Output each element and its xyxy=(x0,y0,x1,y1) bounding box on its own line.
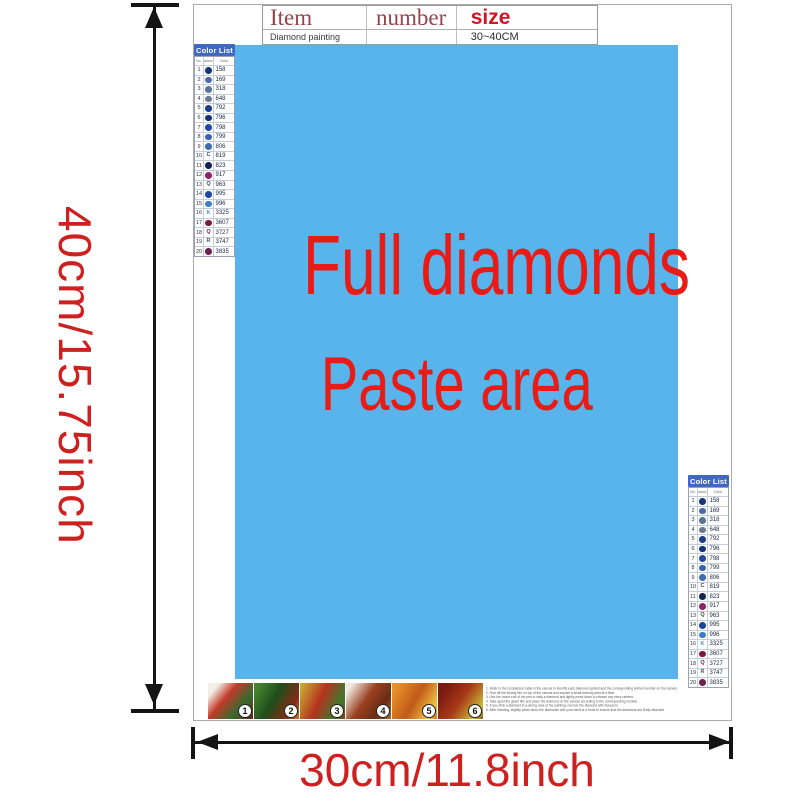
color-number: 18 xyxy=(689,659,698,668)
color-symbol-cell xyxy=(204,123,214,132)
step-number-badge: 6 xyxy=(468,704,482,718)
color-symbol-cell xyxy=(204,171,214,180)
color-number: 15 xyxy=(195,200,204,209)
color-number: 4 xyxy=(689,526,698,535)
color-list-row: 10 C 819 xyxy=(195,151,234,161)
dmc-code: 792 xyxy=(708,536,728,542)
color-list-row: 4 648 xyxy=(689,525,728,535)
item-header-label: Item xyxy=(270,6,312,29)
color-list-column-headers: No. Diamond Color xyxy=(689,488,728,496)
color-list-row: 15 996 xyxy=(195,199,234,209)
color-number: 12 xyxy=(689,602,698,611)
color-number: 16 xyxy=(689,640,698,649)
color-list-row: 15 996 xyxy=(689,630,728,640)
step-thumbnail-image: 3 xyxy=(300,683,345,719)
instructions-lines: 1. Refer to the comparison table in the … xyxy=(486,687,702,713)
step-thumbnail-image: 5 xyxy=(392,683,437,719)
color-number: 19 xyxy=(689,669,698,678)
color-number: 1 xyxy=(195,66,204,75)
step-thumbnail-image: 4 xyxy=(346,683,391,719)
dmc-code: 823 xyxy=(214,163,234,169)
diamond-symbol-icon xyxy=(699,498,706,505)
color-number: 14 xyxy=(195,190,204,199)
color-symbol-cell xyxy=(204,190,214,199)
dmc-code: 318 xyxy=(708,517,728,523)
color-list-row: 11 823 xyxy=(689,591,728,601)
diamond-symbol-icon xyxy=(699,508,706,515)
dmc-code: 819 xyxy=(214,153,234,159)
dmc-code: 823 xyxy=(708,594,728,600)
arrow-up-icon xyxy=(145,7,163,28)
col-diamond-label: Diamond xyxy=(204,57,214,65)
color-symbol-cell: Q xyxy=(204,228,214,237)
color-list-right: Color List No. Diamond Color 1 158 xyxy=(688,475,729,688)
color-number: 5 xyxy=(689,535,698,544)
dmc-code: 3607 xyxy=(708,651,728,657)
color-list-row: 9 806 xyxy=(689,572,728,582)
color-symbol-cell: R xyxy=(698,669,708,678)
color-list-row: 14 995 xyxy=(689,620,728,630)
diamond-symbol-icon xyxy=(205,124,212,131)
item-table-header-row: Item number size xyxy=(263,6,597,30)
item-info-table: Item number size Diamond painting 30~40C… xyxy=(262,5,598,45)
step-number-badge: 5 xyxy=(422,704,436,718)
diamond-symbol-icon xyxy=(205,162,212,169)
diamond-symbol-icon xyxy=(205,172,212,179)
color-symbol-cell xyxy=(204,76,214,85)
dmc-code: 792 xyxy=(214,105,234,111)
color-number: 13 xyxy=(689,612,698,621)
dmc-code: 169 xyxy=(708,508,728,514)
product-size-diagram: Item number size Diamond painting 30~40C… xyxy=(0,0,800,800)
dmc-code: 995 xyxy=(214,191,234,197)
dmc-code: 3835 xyxy=(214,249,234,255)
color-symbol-cell xyxy=(698,678,708,687)
color-symbol-cell xyxy=(204,95,214,104)
diamond-symbol-icon xyxy=(205,201,212,208)
diamond-symbol-icon xyxy=(699,679,706,686)
color-symbol-cell xyxy=(698,592,708,601)
dmc-code: 648 xyxy=(214,96,234,102)
size-value: 30~40CM xyxy=(471,32,519,43)
height-arrow-bottom-cap xyxy=(131,709,179,713)
dmc-code: 799 xyxy=(214,134,234,140)
size-header-label: size xyxy=(471,7,511,28)
item-value: Diamond painting xyxy=(270,33,340,42)
number-header-label: number xyxy=(376,6,446,29)
color-number: 2 xyxy=(689,507,698,516)
color-symbol-cell xyxy=(698,497,708,506)
arrow-down-icon xyxy=(145,684,163,705)
color-list-row: 19 R 3747 xyxy=(689,668,728,678)
dmc-code: 158 xyxy=(214,67,234,73)
color-number: 13 xyxy=(195,181,204,190)
width-dimension-label: 30cm/11.8inch xyxy=(247,747,647,793)
dmc-code: 996 xyxy=(214,201,234,207)
color-number: 10 xyxy=(195,152,204,161)
step-number-badge: 3 xyxy=(330,704,344,718)
height-dimension-label: 40cm/15.75inch xyxy=(52,206,98,545)
diamond-symbol-icon xyxy=(699,651,706,658)
color-number: 7 xyxy=(689,554,698,563)
color-list-row: 13 Q 963 xyxy=(689,611,728,621)
color-number: 4 xyxy=(195,95,204,104)
col-diamond-label: Diamond xyxy=(698,488,708,496)
color-symbol-cell: Q xyxy=(204,181,214,190)
color-symbol-cell xyxy=(698,573,708,582)
color-symbol-cell xyxy=(204,133,214,142)
color-symbol-cell xyxy=(204,66,214,75)
color-list-row: 9 806 xyxy=(195,141,234,151)
dmc-code: 819 xyxy=(708,584,728,590)
color-list-row: 17 3607 xyxy=(195,218,234,228)
color-number: 11 xyxy=(689,592,698,601)
instruction-line: 6. After finishing, slightly press down … xyxy=(486,708,702,712)
color-list-row: 19 R 3747 xyxy=(195,237,234,247)
color-list-row: 7 798 xyxy=(195,122,234,132)
color-symbol-cell xyxy=(204,114,214,123)
step-thumbnail-strip: 1 2 3 4 5 6 xyxy=(208,683,483,719)
diamond-symbol-icon xyxy=(205,77,212,84)
color-symbol-cell xyxy=(698,526,708,535)
color-list-row: 2 169 xyxy=(195,75,234,85)
step-number-badge: 2 xyxy=(284,704,298,718)
color-number: 14 xyxy=(689,621,698,630)
item-table-value-row: Diamond painting 30~40CM xyxy=(263,30,597,44)
color-list-rows: 1 158 2 169 xyxy=(689,496,728,687)
item-value-cell: Diamond painting xyxy=(263,30,367,44)
dmc-code: 796 xyxy=(214,115,234,121)
color-list-row: 5 792 xyxy=(689,534,728,544)
color-symbol-cell: R xyxy=(204,238,214,247)
color-symbol-cell: K xyxy=(204,209,214,218)
dmc-code: 917 xyxy=(214,172,234,178)
color-list-row: 4 648 xyxy=(195,94,234,104)
color-number: 3 xyxy=(195,85,204,94)
color-number: 1 xyxy=(689,497,698,506)
color-list-row: 16 K 3325 xyxy=(195,208,234,218)
diamond-symbol-icon xyxy=(699,546,706,553)
color-symbol-cell xyxy=(698,545,708,554)
color-number: 9 xyxy=(195,142,204,151)
color-number: 17 xyxy=(195,219,204,228)
diamond-symbol-icon: K xyxy=(205,210,212,217)
diamond-symbol-icon xyxy=(205,115,212,122)
color-symbol-cell: C xyxy=(204,152,214,161)
diamond-symbol-icon xyxy=(205,134,212,141)
diamond-symbol-icon xyxy=(699,555,706,562)
diamond-symbol-icon: Q xyxy=(205,229,212,236)
color-number: 16 xyxy=(195,209,204,218)
color-number: 11 xyxy=(195,161,204,170)
color-list-row: 12 917 xyxy=(195,170,234,180)
color-number: 20 xyxy=(689,678,698,687)
diamond-symbol-icon xyxy=(699,536,706,543)
color-symbol-cell xyxy=(204,200,214,209)
color-list-row: 11 823 xyxy=(195,160,234,170)
color-symbol-cell: C xyxy=(698,583,708,592)
color-list-row: 3 318 xyxy=(689,515,728,525)
color-list-row: 7 798 xyxy=(689,553,728,563)
dmc-code: 3747 xyxy=(708,670,728,676)
diamond-symbol-icon xyxy=(699,527,706,534)
diamond-symbol-icon xyxy=(699,603,706,610)
color-list-column-headers: No. Diamond Color xyxy=(195,57,234,65)
paste-area-title-line2: Paste area xyxy=(235,347,678,423)
arrow-left-icon xyxy=(197,734,218,750)
color-symbol-cell xyxy=(698,554,708,563)
dmc-code: 796 xyxy=(708,546,728,552)
diamond-symbol-icon xyxy=(699,574,706,581)
col-no-label: No. xyxy=(195,57,204,65)
color-symbol-cell: K xyxy=(698,640,708,649)
dmc-code: 3835 xyxy=(708,680,728,686)
height-arrow-line xyxy=(153,5,156,710)
dmc-code: 995 xyxy=(708,622,728,628)
color-list-row: 14 995 xyxy=(195,189,234,199)
diamond-symbol-icon: C xyxy=(205,153,212,160)
dmc-code: 963 xyxy=(708,613,728,619)
number-value-cell xyxy=(367,30,457,44)
color-list-table: No. Diamond Color 1 158 2 xyxy=(688,487,729,688)
color-list-row: 1 158 xyxy=(689,496,728,506)
diamond-symbol-icon: Q xyxy=(699,613,706,620)
color-number: 6 xyxy=(689,545,698,554)
color-number: 5 xyxy=(195,104,204,113)
color-list-row: 8 799 xyxy=(689,563,728,573)
color-list-row: 20 3835 xyxy=(689,677,728,687)
number-header-cell: number xyxy=(367,6,457,29)
color-list-row: 16 K 3325 xyxy=(689,639,728,649)
dmc-code: 648 xyxy=(708,527,728,533)
color-number: 17 xyxy=(689,650,698,659)
diamond-symbol-icon xyxy=(205,105,212,112)
color-number: 18 xyxy=(195,228,204,237)
diamond-symbol-icon: R xyxy=(205,239,212,246)
paste-area: Full diamonds Paste area xyxy=(235,45,678,679)
dmc-code: 3607 xyxy=(214,220,234,226)
color-list-title: Color List xyxy=(194,44,235,56)
color-number: 3 xyxy=(689,516,698,525)
color-list-rows: 1 158 2 169 xyxy=(195,65,234,256)
color-symbol-cell xyxy=(204,104,214,113)
color-list-table: No. Diamond Color 1 158 2 xyxy=(194,56,235,257)
size-value-cell: 30~40CM xyxy=(457,30,597,44)
diamond-symbol-icon xyxy=(699,622,706,629)
dmc-code: 3747 xyxy=(214,239,234,245)
diamond-symbol-icon xyxy=(699,565,706,572)
diamond-symbol-icon: R xyxy=(699,670,706,677)
color-list-row: 6 796 xyxy=(195,113,234,123)
diamond-symbol-icon: K xyxy=(699,641,706,648)
dmc-code: 799 xyxy=(708,565,728,571)
dmc-code: 798 xyxy=(214,125,234,131)
color-symbol-cell xyxy=(698,516,708,525)
arrow-right-icon xyxy=(709,734,730,750)
diamond-symbol-icon xyxy=(205,67,212,74)
item-header-cell: Item xyxy=(263,6,367,29)
dmc-code: 3727 xyxy=(214,230,234,236)
diamond-symbol-icon xyxy=(205,143,212,150)
dmc-code: 3325 xyxy=(214,210,234,216)
dmc-code: 996 xyxy=(708,632,728,638)
color-symbol-cell: Q xyxy=(698,612,708,621)
col-color-label: Color xyxy=(214,59,234,63)
color-list-row: 18 Q 3727 xyxy=(689,658,728,668)
color-symbol-cell xyxy=(698,535,708,544)
color-symbol-cell xyxy=(698,621,708,630)
diamond-symbol-icon: Q xyxy=(205,182,212,189)
color-list-row: 13 Q 963 xyxy=(195,180,234,190)
color-symbol-cell xyxy=(698,631,708,640)
color-number: 8 xyxy=(195,133,204,142)
color-number: 12 xyxy=(195,171,204,180)
color-symbol-cell xyxy=(204,161,214,170)
color-number: 9 xyxy=(689,573,698,582)
color-symbol-cell xyxy=(204,247,214,256)
color-number: 15 xyxy=(689,631,698,640)
color-list-row: 10 C 819 xyxy=(689,582,728,592)
color-list-row: 1 158 xyxy=(195,65,234,75)
color-list-row: 17 3607 xyxy=(689,649,728,659)
color-list-row: 2 169 xyxy=(689,506,728,516)
diamond-symbol-icon xyxy=(205,86,212,93)
dmc-code: 3325 xyxy=(708,641,728,647)
diamond-symbol-icon xyxy=(205,220,212,227)
diamond-symbol-icon xyxy=(205,191,212,198)
step-thumbnail-image: 6 xyxy=(438,683,483,719)
color-list-row: 20 3835 xyxy=(195,246,234,256)
color-list-title: Color List xyxy=(688,475,729,487)
step-number-badge: 1 xyxy=(238,704,252,718)
dmc-code: 158 xyxy=(708,498,728,504)
dmc-code: 917 xyxy=(708,603,728,609)
dmc-code: 169 xyxy=(214,77,234,83)
color-number: 6 xyxy=(195,114,204,123)
color-list-row: 6 796 xyxy=(689,544,728,554)
color-list-left: Color List No. Diamond Color 1 158 xyxy=(194,44,235,257)
color-symbol-cell xyxy=(204,219,214,228)
diamond-symbol-icon xyxy=(699,593,706,600)
color-list-row: 8 799 xyxy=(195,132,234,142)
diamond-symbol-icon xyxy=(205,96,212,103)
color-list-row: 12 917 xyxy=(689,601,728,611)
color-symbol-cell: Q xyxy=(698,659,708,668)
size-header-cell: size xyxy=(457,6,597,29)
diamond-symbol-icon: C xyxy=(699,584,706,591)
color-symbol-cell xyxy=(698,507,708,516)
paste-area-text: Paste area xyxy=(320,347,592,423)
color-number: 7 xyxy=(195,123,204,132)
color-number: 8 xyxy=(689,564,698,573)
diamond-symbol-icon xyxy=(205,248,212,255)
instructions-block: 1. Refer to the comparison table in the … xyxy=(486,687,702,715)
diamond-symbol-icon xyxy=(699,517,706,524)
dmc-code: 806 xyxy=(214,144,234,150)
col-color-label: Color xyxy=(708,490,728,494)
dmc-code: 806 xyxy=(708,575,728,581)
color-list-row: 18 Q 3727 xyxy=(195,227,234,237)
diamond-symbol-icon xyxy=(699,632,706,639)
color-number: 10 xyxy=(689,583,698,592)
color-symbol-cell xyxy=(698,602,708,611)
step-thumbnail-image: 1 xyxy=(208,683,253,719)
color-list-row: 3 318 xyxy=(195,84,234,94)
color-symbol-cell xyxy=(698,564,708,573)
width-arrow-right-cap xyxy=(729,727,733,759)
color-number: 20 xyxy=(195,247,204,256)
step-number-badge: 4 xyxy=(376,704,390,718)
color-symbol-cell xyxy=(698,650,708,659)
dmc-code: 3727 xyxy=(708,661,728,667)
col-no-label: No. xyxy=(689,488,698,496)
diamond-symbol-icon: Q xyxy=(699,660,706,667)
step-thumbnail-image: 2 xyxy=(254,683,299,719)
color-number: 19 xyxy=(195,238,204,247)
paste-area-title-line1: Full diamonds xyxy=(235,223,678,307)
dmc-code: 318 xyxy=(214,86,234,92)
dmc-code: 963 xyxy=(214,182,234,188)
color-list-row: 5 792 xyxy=(195,103,234,113)
dmc-code: 798 xyxy=(708,556,728,562)
color-symbol-cell xyxy=(204,85,214,94)
color-symbol-cell xyxy=(204,142,214,151)
color-number: 2 xyxy=(195,76,204,85)
full-diamonds-text: Full diamonds xyxy=(303,223,690,307)
